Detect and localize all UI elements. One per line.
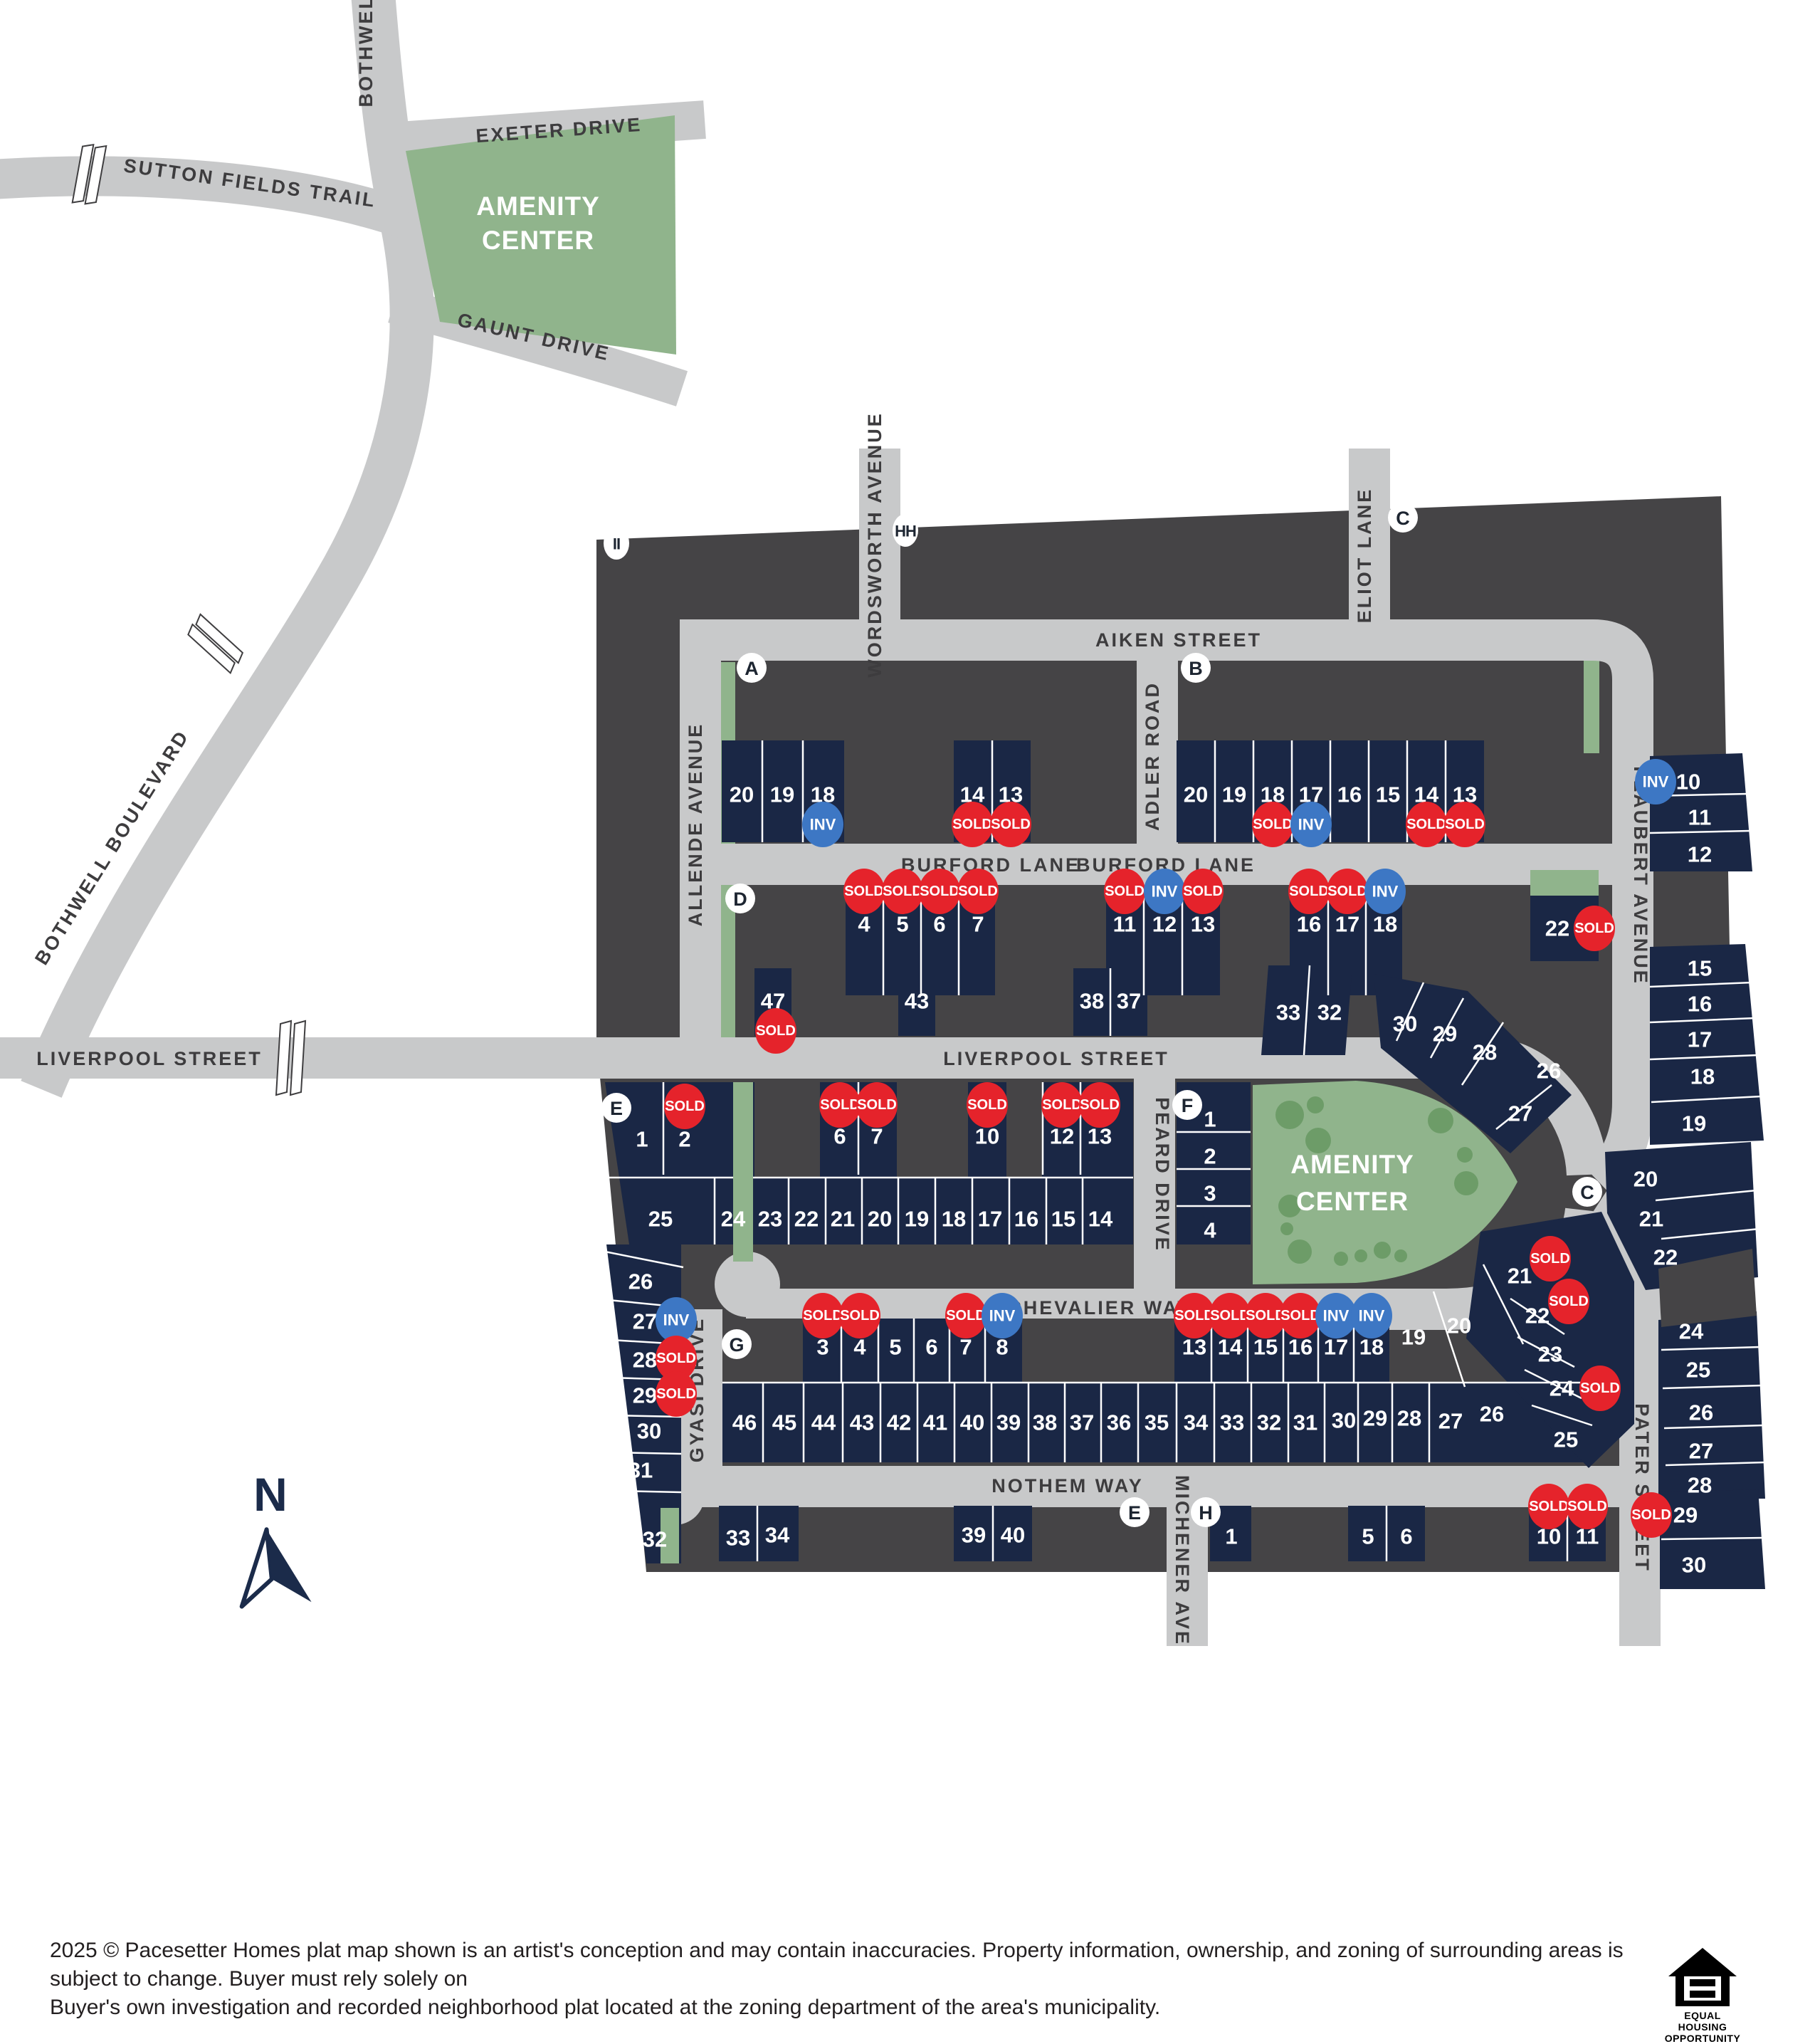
sold-badge[interactable]: SOLD	[1579, 1366, 1621, 1411]
disclaimer: 2025 © Pacesetter Homes plat map shown i…	[50, 1936, 1680, 2022]
lot-number[interactable]: 5	[889, 1335, 901, 1360]
disclaimer-line1: 2025 © Pacesetter Homes plat map shown i…	[50, 1939, 1624, 1991]
lot-number[interactable]: 28	[633, 1348, 657, 1373]
svg-text:SOLD: SOLD	[991, 817, 1031, 832]
lot-number[interactable]: 26	[1689, 1400, 1713, 1425]
svg-text:C: C	[1396, 508, 1410, 529]
svg-text:SOLD: SOLD	[1042, 1097, 1082, 1113]
sold-badge[interactable]: SOLD	[1406, 802, 1447, 847]
lot-number[interactable]: 30	[637, 1419, 661, 1444]
lot-number[interactable]: 41	[923, 1410, 947, 1435]
svg-text:SOLD: SOLD	[1530, 1251, 1570, 1267]
eho-line2: OPPORTUNITY	[1665, 2033, 1741, 2044]
lot-number[interactable]: 19	[905, 1207, 929, 1232]
lot-number[interactable]: 27	[1438, 1409, 1463, 1434]
lot-number[interactable]: 30	[1393, 1012, 1417, 1037]
inventory-badge[interactable]: INV	[1144, 869, 1185, 914]
lot-number[interactable]: 26	[628, 1269, 653, 1294]
inventory-badge[interactable]: INV	[982, 1293, 1023, 1338]
block-marker-c: C	[1572, 1177, 1602, 1207]
lot-number[interactable]: 4	[858, 912, 870, 937]
svg-text:SOLD: SOLD	[656, 1386, 696, 1402]
sold-badge[interactable]: SOLD	[856, 1082, 898, 1128]
equal-housing-logo: EQUAL HOUSING OPPORTUNITY	[1658, 1948, 1747, 2044]
inventory-badge[interactable]: INV	[1290, 802, 1332, 847]
svg-text:SOLD: SOLD	[1567, 1499, 1607, 1514]
block-marker-b: B	[1181, 653, 1211, 683]
lot-number[interactable]: 18	[1690, 1064, 1715, 1089]
lot-number[interactable]: 3	[1204, 1181, 1216, 1206]
lot-number[interactable]: 34	[1184, 1410, 1209, 1435]
lot-number[interactable]: 43	[850, 1410, 874, 1435]
lot-number[interactable]: 6	[925, 1335, 937, 1360]
svg-text:SOLD: SOLD	[803, 1308, 843, 1324]
lot-number[interactable]: 23	[1538, 1342, 1562, 1367]
lot-number[interactable]: 25	[648, 1207, 673, 1232]
sold-badge[interactable]: SOLD	[1288, 869, 1330, 914]
lot-number[interactable]: 44	[811, 1410, 836, 1435]
lot-number[interactable]: 18	[942, 1207, 966, 1232]
svg-text:SOLD: SOLD	[840, 1308, 880, 1324]
svg-text:INV: INV	[663, 1311, 690, 1329]
street-label: NOTHEM WAY	[991, 1475, 1144, 1497]
lot-number[interactable]: 27	[1689, 1439, 1713, 1464]
svg-text:B: B	[1189, 658, 1203, 679]
sold-badge[interactable]: SOLD	[945, 1293, 987, 1338]
street-label: AIKEN STREET	[1095, 629, 1262, 651]
block-marker-h: H	[1191, 1497, 1221, 1527]
lot-number[interactable]: 20	[1447, 1314, 1471, 1338]
svg-text:INV: INV	[810, 816, 836, 834]
lot-number[interactable]: 40	[960, 1410, 984, 1435]
svg-text:SOLD: SOLD	[1289, 884, 1329, 899]
street-label: LIVERPOOL STREET	[943, 1048, 1169, 1069]
lot-number[interactable]: 16	[1014, 1207, 1038, 1232]
block-marker-d: D	[725, 884, 755, 913]
lot-number[interactable]: 33	[1220, 1410, 1244, 1435]
lot-number[interactable]: 39	[962, 1523, 986, 1548]
lot-number[interactable]: 39	[996, 1410, 1021, 1435]
sold-badge[interactable]: SOLD	[882, 869, 923, 914]
svg-text:E: E	[1128, 1502, 1141, 1524]
lot-number[interactable]: 21	[1508, 1264, 1532, 1289]
lot-number[interactable]: 21	[831, 1207, 855, 1232]
lot-number[interactable]: 30	[1682, 1553, 1706, 1578]
lot-number[interactable]: 20	[1184, 782, 1208, 807]
street-label: MICHENER AVE	[1172, 1475, 1193, 1646]
lot-number[interactable]: 18	[1373, 912, 1397, 937]
lot-number[interactable]: 19	[1682, 1111, 1706, 1136]
sold-badge[interactable]: SOLD	[952, 802, 993, 847]
green-sliver-lot22	[1530, 870, 1599, 896]
svg-text:SOLD: SOLD	[1445, 817, 1485, 832]
north-arrow	[234, 1526, 312, 1610]
svg-text:SOLD: SOLD	[883, 884, 922, 899]
lot-number[interactable]: 38	[1080, 989, 1104, 1014]
lot-number[interactable]: 24	[1679, 1319, 1704, 1344]
svg-text:INV: INV	[1643, 773, 1669, 791]
svg-text:SOLD: SOLD	[1549, 1294, 1589, 1309]
lot-number[interactable]: 19	[1222, 782, 1246, 807]
lot-number[interactable]: 26	[1537, 1059, 1561, 1084]
lot-number[interactable]: 14	[1088, 1207, 1113, 1232]
lot-number[interactable]: 22	[794, 1207, 819, 1232]
svg-text:C: C	[1580, 1182, 1594, 1203]
sold-badge[interactable]: SOLD	[1252, 802, 1293, 847]
sold-badge[interactable]: SOLD	[1079, 1082, 1120, 1128]
street-label: PATER STREET	[1631, 1403, 1653, 1573]
svg-text:SOLD: SOLD	[946, 1308, 986, 1324]
lot-number[interactable]: 17	[978, 1207, 1002, 1232]
lot-number[interactable]: 38	[1033, 1410, 1057, 1435]
svg-text:SOLD: SOLD	[967, 1097, 1007, 1113]
equal-housing-house-icon	[1668, 1948, 1737, 2006]
sold-badge[interactable]: SOLD	[990, 802, 1031, 847]
sold-badge[interactable]: SOLD	[1209, 1293, 1251, 1338]
lot-number[interactable]: 6	[933, 912, 945, 937]
lot-number[interactable]: 11	[1688, 805, 1712, 830]
svg-text:SOLD: SOLD	[857, 1097, 897, 1113]
svg-text:SOLD: SOLD	[665, 1099, 705, 1114]
svg-text:HH: HH	[895, 523, 916, 540]
lot-number[interactable]: 29	[1433, 1022, 1457, 1047]
svg-text:SOLD: SOLD	[1574, 921, 1614, 936]
sold-badge[interactable]: SOLD	[1182, 869, 1224, 914]
sold-badge[interactable]: SOLD	[664, 1084, 705, 1129]
svg-text:SOLD: SOLD	[1327, 884, 1367, 899]
lot-number[interactable]: 16	[1297, 912, 1321, 937]
lot-number[interactable]: 24	[721, 1207, 746, 1232]
lot-number[interactable]: 29	[633, 1383, 657, 1408]
lot-number[interactable]: 32	[1317, 1000, 1342, 1025]
sold-badge[interactable]: SOLD	[957, 869, 999, 914]
lot-number[interactable]: 32	[643, 1527, 667, 1552]
svg-text:INV: INV	[1323, 1307, 1350, 1325]
block-marker-hh: HH	[893, 514, 918, 547]
lot-number[interactable]: 30	[1332, 1408, 1356, 1433]
sold-badge[interactable]: SOLD	[656, 1371, 697, 1417]
svg-text:INV: INV	[1298, 816, 1325, 834]
svg-text:SOLD: SOLD	[1529, 1499, 1569, 1514]
lot-number[interactable]: 1	[1204, 1107, 1216, 1132]
lot-number[interactable]: 28	[1688, 1473, 1712, 1498]
amenity-center-title: CENTER	[1296, 1187, 1409, 1216]
street-label: ELIOT LANE	[1354, 488, 1375, 624]
lot-number[interactable]: 22	[1545, 916, 1569, 941]
street-label: LIVERPOOL STREET	[36, 1048, 263, 1069]
svg-text:SOLD: SOLD	[958, 884, 998, 899]
svg-text:SOLD: SOLD	[1580, 1380, 1620, 1396]
sold-badge[interactable]: SOLD	[1444, 802, 1485, 847]
lot-number[interactable]: 17	[1688, 1027, 1712, 1052]
block-marker-g: G	[722, 1329, 752, 1359]
svg-text:SOLD: SOLD	[820, 1097, 860, 1113]
lot-number[interactable]: 20	[868, 1207, 892, 1232]
svg-text:INV: INV	[989, 1307, 1016, 1325]
sold-badge[interactable]: SOLD	[819, 1082, 861, 1128]
lot-number[interactable]: 28	[1473, 1040, 1497, 1065]
svg-text:SOLD: SOLD	[1406, 817, 1446, 832]
lot-number[interactable]: 12	[1688, 842, 1712, 867]
amenity-center-title: CENTER	[482, 226, 594, 255]
block-marker-c: C	[1388, 503, 1418, 533]
lot-number[interactable]: 28	[1397, 1406, 1421, 1431]
inventory-badge[interactable]: INV	[802, 802, 843, 847]
sold-badge[interactable]: SOLD	[1327, 869, 1368, 914]
street-label: ADLER ROAD	[1142, 681, 1163, 831]
lot-number[interactable]: 40	[1001, 1523, 1025, 1548]
svg-text:INV: INV	[1152, 883, 1178, 901]
lot-number[interactable]: 16	[1337, 782, 1362, 807]
sold-badge[interactable]: SOLD	[1631, 1492, 1672, 1538]
lot-number[interactable]: 17	[1335, 912, 1359, 937]
lot-number[interactable]: 29	[1673, 1503, 1698, 1528]
street-label: PEARD DRIVE	[1152, 1097, 1173, 1252]
green-sliver-b-block	[1584, 659, 1599, 753]
green-walkway	[733, 1082, 753, 1262]
lot-number[interactable]: 15	[1688, 956, 1712, 981]
amenity-center-title: AMENITY	[476, 192, 600, 221]
lot-number[interactable]: 37	[1070, 1410, 1094, 1435]
inventory-badge[interactable]: INV	[1364, 869, 1406, 914]
sold-badge[interactable]: SOLD	[919, 869, 960, 914]
lot-number[interactable]: 23	[758, 1207, 782, 1232]
svg-text:SOLD: SOLD	[844, 884, 884, 899]
svg-text:SOLD: SOLD	[952, 817, 992, 832]
lot-number[interactable]: 46	[732, 1410, 757, 1435]
lot-number[interactable]: 22	[1525, 1304, 1550, 1328]
lot-number[interactable]: 21	[1639, 1207, 1663, 1232]
plat-map: BOTHWELLEXETER DRIVESUTTON FIELDS TRAILG…	[0, 0, 1815, 2029]
lot-number[interactable]: 31	[628, 1458, 653, 1483]
lot-number[interactable]: 15	[1376, 782, 1400, 807]
svg-text:INV: INV	[1372, 883, 1399, 901]
sold-badge[interactable]: SOLD	[802, 1293, 843, 1338]
svg-text:G: G	[729, 1334, 744, 1356]
lot-number[interactable]: 2	[678, 1127, 690, 1152]
lot-number[interactable]: 26	[1480, 1402, 1504, 1427]
inventory-badge[interactable]: INV	[1635, 759, 1676, 805]
sold-badge[interactable]: SOLD	[1574, 906, 1615, 951]
lot-number[interactable]: 27	[633, 1309, 657, 1334]
street-label: ALLENDE AVENUE	[685, 723, 706, 927]
eho-line1: EQUAL HOUSING	[1678, 2010, 1727, 2033]
lot-number[interactable]: 45	[772, 1410, 796, 1435]
lot-number[interactable]: 36	[1107, 1410, 1131, 1435]
lot-number[interactable]: 1	[1225, 1524, 1237, 1549]
sold-badge[interactable]: SOLD	[1548, 1279, 1589, 1324]
svg-text:SOLD: SOLD	[1210, 1308, 1250, 1324]
disclaimer-line2: Buyer's own investigation and recorded n…	[50, 1996, 1160, 2019]
inventory-badge[interactable]: INV	[1351, 1293, 1392, 1338]
sold-badge[interactable]: SOLD	[1174, 1293, 1215, 1338]
svg-text:SOLD: SOLD	[1183, 884, 1223, 899]
svg-text:H: H	[1199, 1502, 1213, 1524]
sold-badge[interactable]: SOLD	[1567, 1484, 1608, 1529]
lot-number[interactable]: 29	[1363, 1406, 1387, 1431]
lot-number[interactable]: 13	[1191, 912, 1215, 937]
sold-badge[interactable]: SOLD	[1528, 1484, 1569, 1529]
street-label: CHEVALIER WAY	[1007, 1297, 1192, 1319]
svg-text:E: E	[610, 1098, 623, 1119]
lot-number[interactable]: 2	[1204, 1144, 1216, 1169]
sold-badge[interactable]: SOLD	[1104, 869, 1145, 914]
svg-text:SOLD: SOLD	[1105, 884, 1145, 899]
svg-text:A: A	[745, 658, 759, 679]
svg-text:II: II	[613, 535, 620, 553]
block-marker-ii: II	[604, 527, 629, 560]
svg-text:INV: INV	[1359, 1307, 1385, 1325]
lot-number[interactable]: 43	[905, 989, 929, 1014]
inventory-badge[interactable]: INV	[1315, 1293, 1357, 1338]
lot-number[interactable]: 34	[765, 1523, 790, 1548]
svg-text:SOLD: SOLD	[1253, 817, 1293, 832]
lot-number[interactable]: 16	[1688, 992, 1712, 1017]
lot-number[interactable]: 7	[972, 912, 984, 937]
block-marker-e: E	[1120, 1497, 1149, 1527]
sold-badge[interactable]: SOLD	[1530, 1236, 1571, 1282]
lot-number[interactable]: 22	[1653, 1245, 1678, 1270]
lot-number[interactable]: 20	[730, 782, 754, 807]
lot-number[interactable]: 10	[1676, 770, 1700, 795]
amenity-center-title: AMENITY	[1290, 1150, 1414, 1179]
street-label: BOTHWELL	[355, 0, 377, 107]
svg-text:SOLD: SOLD	[1631, 1507, 1671, 1523]
svg-text:F: F	[1182, 1095, 1194, 1116]
lot-number[interactable]: 37	[1117, 989, 1141, 1014]
sold-badge[interactable]: SOLD	[1280, 1293, 1321, 1338]
lot-number[interactable]: 35	[1145, 1410, 1169, 1435]
block-marker-a: A	[737, 653, 767, 683]
lot-number[interactable]: 12	[1152, 912, 1177, 937]
lot-number[interactable]: 6	[1400, 1524, 1412, 1549]
lot-number[interactable]: 5	[1362, 1524, 1374, 1549]
lot-number[interactable]: 19	[770, 782, 794, 807]
lot-number[interactable]: 1	[636, 1127, 648, 1152]
lot-number[interactable]: 20	[1633, 1167, 1658, 1192]
lot-number[interactable]: 32	[1257, 1410, 1281, 1435]
block-marker-e: E	[601, 1093, 631, 1123]
lot-number[interactable]: 24	[1550, 1376, 1574, 1401]
lot-number[interactable]: 15	[1051, 1207, 1075, 1232]
north-label: N	[253, 1468, 288, 1521]
sold-badge[interactable]: SOLD	[1041, 1082, 1083, 1128]
svg-text:D: D	[733, 889, 747, 910]
lot-number[interactable]: 25	[1554, 1427, 1578, 1452]
lot-number[interactable]: 19	[1401, 1325, 1426, 1350]
svg-text:SOLD: SOLD	[1174, 1308, 1214, 1324]
lot-number[interactable]: 4	[1204, 1218, 1216, 1243]
svg-text:SOLD: SOLD	[756, 1023, 796, 1039]
svg-text:SOLD: SOLD	[920, 884, 959, 899]
lot-number[interactable]: 31	[1293, 1410, 1317, 1435]
svg-text:SOLD: SOLD	[1080, 1097, 1120, 1113]
sold-badge[interactable]: SOLD	[843, 869, 885, 914]
sold-badge[interactable]: SOLD	[839, 1293, 880, 1338]
svg-text:SOLD: SOLD	[656, 1351, 696, 1366]
lot-number[interactable]: 25	[1686, 1358, 1710, 1383]
lot-number[interactable]: 33	[1276, 1000, 1300, 1025]
svg-text:SOLD: SOLD	[1246, 1308, 1285, 1324]
street-label: WORDSWORTH AVENUE	[864, 412, 885, 677]
lot-number[interactable]: 11	[1113, 912, 1137, 937]
sold-badge[interactable]: SOLD	[755, 1008, 796, 1054]
svg-text:SOLD: SOLD	[1280, 1308, 1320, 1324]
block-marker-f: F	[1172, 1090, 1202, 1120]
sold-badge[interactable]: SOLD	[967, 1082, 1008, 1128]
lot-number[interactable]: 33	[726, 1526, 750, 1551]
lot-number[interactable]: 27	[1508, 1101, 1532, 1126]
lot-number[interactable]: 5	[896, 912, 908, 937]
lot-number[interactable]: 42	[887, 1410, 911, 1435]
